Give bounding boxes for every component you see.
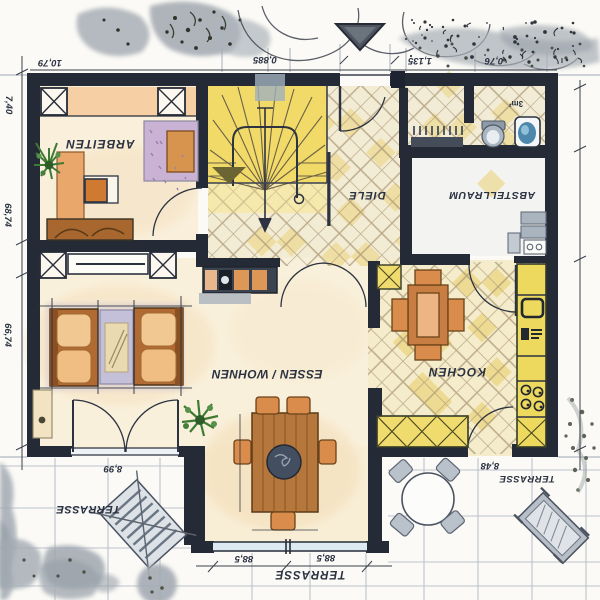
svg-text:88,5: 88,5 bbox=[316, 552, 335, 563]
svg-text:0,76: 0,76 bbox=[484, 55, 503, 66]
svg-text:KOCHEN: KOCHEN bbox=[428, 365, 486, 379]
svg-text:3m²: 3m² bbox=[509, 99, 524, 108]
svg-text:TERRASSE: TERRASSE bbox=[56, 503, 120, 515]
svg-text:8,48: 8,48 bbox=[480, 460, 499, 471]
svg-text:10,79: 10,79 bbox=[37, 57, 61, 68]
svg-text:66,74: 66,74 bbox=[2, 323, 13, 347]
svg-text:1,135: 1,135 bbox=[407, 55, 431, 66]
svg-text:ESSEN / WOHNEN: ESSEN / WOHNEN bbox=[212, 367, 323, 381]
svg-text:7,40: 7,40 bbox=[3, 96, 14, 115]
svg-text:88,5: 88,5 bbox=[234, 553, 253, 564]
svg-text:68,74: 68,74 bbox=[2, 203, 13, 227]
svg-text:TERRASSE: TERRASSE bbox=[499, 473, 555, 484]
svg-text:ARBEITEN: ARBEITEN bbox=[65, 137, 135, 151]
svg-text:8,99: 8,99 bbox=[103, 463, 122, 474]
svg-text:DIELE: DIELE bbox=[348, 189, 385, 201]
svg-text:0,885: 0,885 bbox=[252, 54, 276, 65]
svg-text:TERRASSE: TERRASSE bbox=[275, 568, 346, 580]
svg-text:ABSTELLRAUM: ABSTELLRAUM bbox=[449, 189, 537, 201]
